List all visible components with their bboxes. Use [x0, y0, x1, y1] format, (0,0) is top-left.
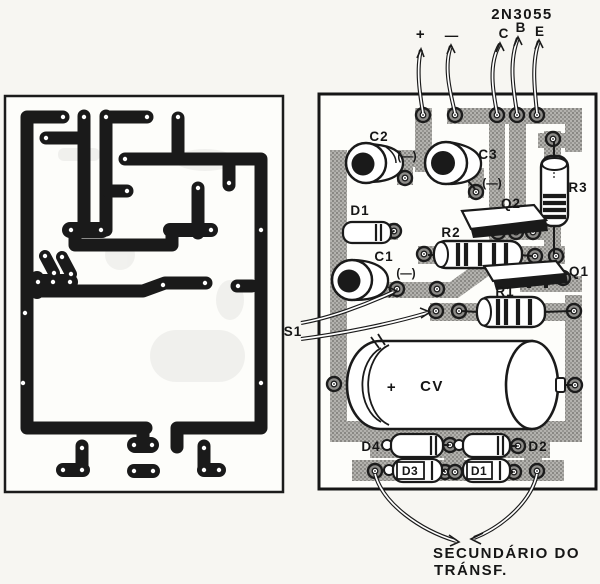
capacitor-c1	[332, 260, 388, 300]
r1-label: R1	[495, 284, 514, 299]
c2-polarity-label: (—)	[397, 151, 416, 163]
d2-label: D2	[528, 439, 547, 454]
d3-body-label: D3	[402, 464, 418, 478]
q2-label: Q2	[501, 196, 521, 211]
cv-plus-label: +	[387, 379, 397, 396]
d1-upper-label: D1	[350, 203, 369, 218]
figure-canvas: 2N3055 C B E + — C2 (—) C3 (—) C1 (—) D1…	[0, 0, 600, 584]
pcb-figure: 2N3055 C B E + — C2 (—) C3 (—) C1 (—) D1…	[0, 0, 600, 584]
caption-line1: SECUNDÁRIO DO	[433, 545, 580, 562]
r3-label: R3	[568, 180, 587, 195]
q1-label: Q1	[569, 264, 589, 279]
pin-e-label: E	[535, 24, 545, 39]
capacitor-c2	[346, 143, 403, 183]
pin-b-label: B	[516, 20, 527, 35]
r2-label: R2	[441, 225, 460, 240]
minus-terminal-label: —	[445, 28, 460, 43]
plus-terminal-label: +	[416, 26, 426, 43]
d4-label: D4	[361, 439, 380, 454]
diode-d1-upper	[343, 222, 394, 243]
cv-label: CV	[420, 378, 444, 395]
s1-label: S1	[284, 324, 303, 339]
c1-polarity-label: (—)	[396, 268, 415, 280]
right-board-component-side	[319, 94, 596, 489]
c3-polarity-label: (—)	[482, 178, 501, 190]
c2-label: C2	[369, 129, 388, 144]
left-board-copper-layout	[5, 96, 283, 492]
caption-line2: TRÁNSF.	[434, 562, 508, 579]
d1-body-label: D1	[471, 464, 487, 478]
c1-label: C1	[374, 249, 393, 264]
c3-label: C3	[478, 147, 497, 162]
pin-c-label: C	[499, 26, 510, 41]
capacitor-cv	[347, 334, 572, 429]
